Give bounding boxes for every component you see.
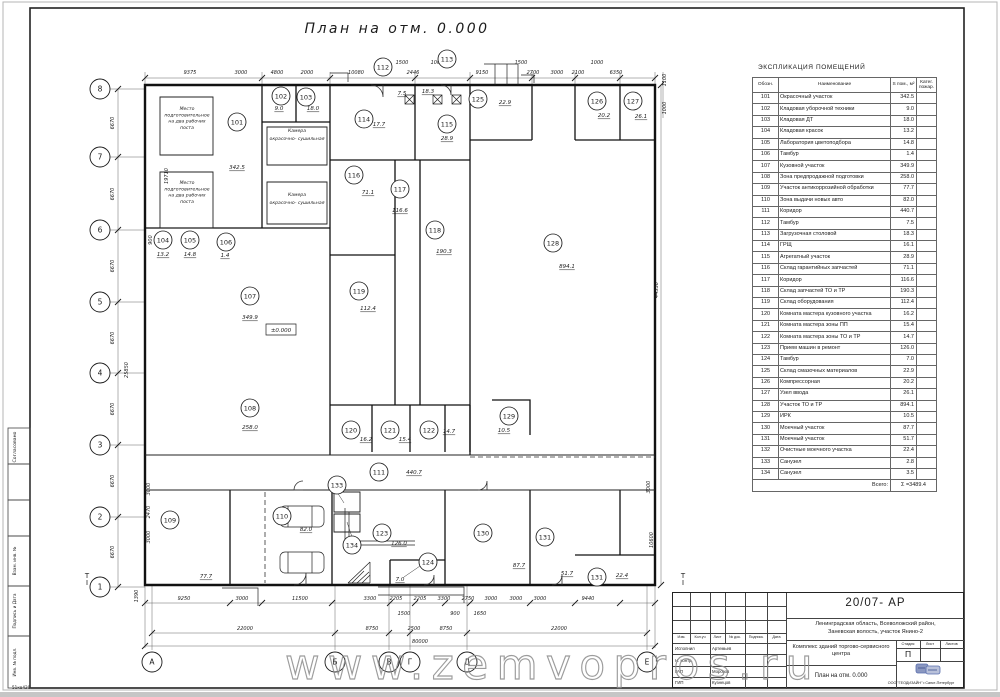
- dim-label: 1500: [515, 60, 528, 66]
- dim-label: 2500: [408, 626, 421, 632]
- room-area: 87.7: [891, 423, 917, 434]
- room-id: 104: [753, 127, 779, 138]
- title-block-project: Комплекс зданий торгово-сервисного центр…: [789, 644, 893, 658]
- dim-label: 2000: [301, 70, 314, 76]
- explication-title: ЭКСПЛИКАЦИЯ ПОМЕЩЕНИЙ: [752, 64, 936, 71]
- side-stamp-label: Подпись и Дата: [12, 593, 17, 628]
- dim-label: 10600: [649, 532, 655, 548]
- role-2: ГАП: [675, 669, 683, 674]
- explication-row: 116Склад гарантийных запчастей71.1: [753, 263, 937, 274]
- room-id: 103: [753, 115, 779, 126]
- room-id: 132: [753, 446, 779, 457]
- room-id: 106: [753, 149, 779, 160]
- room-id: 125: [753, 366, 779, 377]
- dim-label: 6670: [110, 260, 116, 273]
- annotation-text: поста: [180, 126, 194, 131]
- explication-row: 112Тамбур7.5: [753, 218, 937, 229]
- dim-label: 3000: [551, 70, 564, 76]
- room-bubble-114: 11417.7: [355, 110, 386, 128]
- explication-row: 119Склад оборудования112.4: [753, 298, 937, 309]
- explication-row: 122Комната мастера зоны ТО и ТР14.7: [753, 332, 937, 343]
- dim-label: 4800: [271, 70, 284, 76]
- axis-left-6: 6: [98, 226, 103, 235]
- annotation-text: окрасочно- сушильная: [270, 137, 325, 142]
- room-id: 120: [753, 309, 779, 320]
- room-category: [917, 366, 937, 377]
- stage-label: Стадия: [896, 642, 920, 646]
- explication-row: 124Тамбур7.0: [753, 354, 937, 365]
- room-category: [917, 468, 937, 479]
- explication-row: 133Санузел2.8: [753, 457, 937, 468]
- dim-label: 3000: [534, 596, 547, 602]
- room-bubble-118: 118190.3: [426, 221, 452, 255]
- dim-label: 1650: [474, 611, 487, 617]
- survey-marker: Т: [84, 572, 90, 580]
- annotation-text: на два рабочих: [168, 193, 206, 199]
- room-category: [917, 104, 937, 115]
- role-header-data: Дата: [767, 635, 786, 639]
- room-category: [917, 354, 937, 365]
- room-bubble-116: 11671.1: [345, 166, 374, 196]
- room-area: 190.3: [891, 286, 917, 297]
- explication-row: 120Комната мастера кузовного участка16.2: [753, 309, 937, 320]
- room-category: [917, 446, 937, 457]
- room-id: 133: [753, 457, 779, 468]
- dim-label: 2750: [462, 596, 475, 602]
- room-bubble-117: 117116.6: [391, 180, 409, 214]
- room-area: 116.6: [392, 208, 408, 214]
- room-number: 126: [591, 97, 603, 105]
- room-area: 16.1: [891, 241, 917, 252]
- room-number: 134: [346, 541, 358, 549]
- room-area: 894.1: [559, 264, 575, 270]
- room-bubble-120: 12016.2: [342, 421, 373, 443]
- room-category: [917, 411, 937, 422]
- room-category: [917, 161, 937, 172]
- room-id: 123: [753, 343, 779, 354]
- room-name: Кладовая красок: [779, 127, 891, 138]
- room-area: 7.5: [891, 218, 917, 229]
- role-header-izm: Изм.: [673, 635, 690, 639]
- annotation-text: подготовительное: [164, 113, 209, 118]
- room-area: 7.5: [398, 91, 407, 97]
- explication-row: 114ГРЩ16.1: [753, 241, 937, 252]
- dim-label: 6670: [110, 403, 116, 416]
- room-area: 14.8: [891, 138, 917, 149]
- room-area: 1.4: [891, 149, 917, 160]
- room-id: 107: [753, 161, 779, 172]
- room-id: 130: [753, 423, 779, 434]
- explication-row: 128Участок ТО и ТР894.1: [753, 400, 937, 411]
- room-area: 18.3: [891, 229, 917, 240]
- room-number: 101: [231, 118, 243, 126]
- room-area: 22.9: [891, 366, 917, 377]
- room-category: [917, 172, 937, 183]
- room-area: 77.7: [200, 574, 213, 580]
- annotation-text: окрасочно- сушильная: [270, 201, 325, 206]
- dim-label: 44330: [654, 282, 660, 298]
- room-area: 349.9: [891, 161, 917, 172]
- room-category: [917, 286, 937, 297]
- room-area: 13.2: [891, 127, 917, 138]
- room-id: 129: [753, 411, 779, 422]
- room-id: 128: [753, 400, 779, 411]
- dimension-lines: [110, 72, 664, 650]
- room-category: [917, 138, 937, 149]
- room-area: 13.2: [157, 252, 170, 258]
- role-3-name: Кузнецов: [712, 680, 730, 685]
- explication-header-row: Обозн. Наименование S пом., м² Катег. по…: [753, 78, 937, 93]
- room-name: Участок ТО и ТР: [779, 400, 891, 411]
- room-bubble-131: 13151.7: [536, 528, 574, 577]
- room-bubble-121: 12115.4: [381, 421, 412, 443]
- explication-row: 103Кладовая ДТ18.0: [753, 115, 937, 126]
- role-3: ГИП: [675, 680, 684, 685]
- side-stamp-label: Инв. № подл.: [12, 648, 17, 677]
- room-area: 51.7: [561, 571, 574, 577]
- drawing-sheet: Взам. инв. №Подпись и ДатаИнв. № подл.Со…: [0, 0, 1000, 692]
- dim-label: 3000: [485, 596, 498, 602]
- room-area: 17.7: [373, 122, 386, 128]
- axis-bottom-А: А: [149, 658, 155, 667]
- room-bubble-127: 12726.1: [624, 92, 647, 120]
- annotation-text: Камера: [288, 128, 306, 134]
- explication-row: 125Склад смазочных материалов22.9: [753, 366, 937, 377]
- room-name: Окрасочный участок: [779, 93, 891, 104]
- room-bubble-131: 13122.4: [588, 568, 629, 586]
- room-area: 440.7: [891, 206, 917, 217]
- role-1: Н. контр.: [675, 658, 693, 663]
- axis-bottom-В: В: [386, 658, 391, 667]
- dim-label: 900: [148, 235, 154, 245]
- dim-label: 1000: [591, 60, 604, 66]
- dim-label: 6670: [110, 188, 116, 201]
- room-id: 102: [753, 104, 779, 115]
- survey-marker: Т: [680, 572, 686, 580]
- explication-table: ЭКСПЛИКАЦИЯ ПОМЕЩЕНИЙ Обозн. Наименовани…: [752, 64, 936, 492]
- axis-left-5: 5: [98, 298, 103, 307]
- room-number: 110: [276, 512, 288, 520]
- room-id: 110: [753, 195, 779, 206]
- dim-label: 1500: [396, 60, 409, 66]
- room-id: 124: [753, 354, 779, 365]
- dim-label: 3000: [236, 596, 249, 602]
- dimension-labels: 9375300048002000100802446915027003000210…: [110, 60, 668, 645]
- plan-details: ±0.000: [222, 64, 562, 606]
- room-area: 14.7: [443, 429, 456, 435]
- room-number: 108: [244, 404, 256, 412]
- dim-label: 6350: [610, 70, 623, 76]
- room-number: 103: [300, 93, 312, 101]
- explication-row: 132Очистные моечного участка22.4: [753, 446, 937, 457]
- dim-label: 3000: [235, 70, 248, 76]
- explication-row: 131Моечный участок51.7: [753, 434, 937, 445]
- dim-label: 6670: [110, 546, 116, 559]
- room-name: ГРЩ: [779, 241, 891, 252]
- explication-row: 129ИРК10.5: [753, 411, 937, 422]
- room-name: Очистные моечного участка: [779, 446, 891, 457]
- room-area: 349.9: [242, 315, 258, 321]
- sheets-label: Листов: [940, 642, 963, 646]
- room-name: Склад оборудования: [779, 298, 891, 309]
- room-category: [917, 320, 937, 331]
- room-number: 128: [547, 239, 559, 247]
- room-area: 18.0: [307, 106, 320, 112]
- axis-left-7: 7: [98, 153, 103, 162]
- axis-bottom-Г: Г: [408, 658, 413, 667]
- room-area: 22.4: [616, 573, 629, 579]
- company-name: ООО "ГЕОДИЗАЙН" г.Санкт-Петербург: [878, 681, 964, 685]
- room-area: 20.2: [891, 377, 917, 388]
- room-area: 15.4: [399, 437, 412, 443]
- walls: [145, 85, 655, 585]
- annotation-text: подготовительное: [164, 187, 209, 192]
- room-number: 123: [376, 529, 388, 537]
- room-id: 109: [753, 184, 779, 195]
- axis-left-8: 8: [98, 85, 103, 94]
- dim-label: 3000: [646, 481, 652, 494]
- annotation-text: Камера: [288, 192, 306, 198]
- explication-grid: Обозн. Наименование S пом., м² Катег. по…: [752, 77, 937, 492]
- room-number: 120: [345, 426, 357, 434]
- room-area: 26.1: [635, 114, 647, 120]
- room-number: 122: [423, 426, 435, 434]
- explication-row: 106Тамбур1.4: [753, 149, 937, 160]
- explication-row: 113Загрузочная столовой18.3: [753, 229, 937, 240]
- room-number: 124: [422, 558, 434, 566]
- room-bubble-109: 10977.7: [161, 511, 213, 580]
- side-stamp-label: Взам. инв. №: [12, 546, 17, 575]
- dim-label: 2470: [146, 506, 152, 519]
- dim-label: 25850: [124, 362, 130, 378]
- room-id: 115: [753, 252, 779, 263]
- explication-row: 117Коридор116.6: [753, 275, 937, 286]
- room-category: [917, 195, 937, 206]
- room-id: 122: [753, 332, 779, 343]
- role-header-koluch: Кол.уч: [690, 635, 710, 639]
- dim-label: 1500: [398, 611, 411, 617]
- room-area: 14.7: [891, 332, 917, 343]
- explication-row: 134Санузел3.5: [753, 468, 937, 479]
- room-name: Зона выдачи новых авто: [779, 195, 891, 206]
- room-area: 26.1: [891, 389, 917, 400]
- room-name: Лаборатория цветоподбора: [779, 138, 891, 149]
- room-id: 134: [753, 468, 779, 479]
- room-area: 126.0: [391, 541, 407, 547]
- room-area: 18.0: [891, 115, 917, 126]
- room-bubble-134: 134: [343, 536, 361, 554]
- room-name: Участок антикоррозийной обработки: [779, 184, 891, 195]
- explication-row: 105Лаборатория цветоподбора14.8: [753, 138, 937, 149]
- col-area: S пом., м²: [891, 78, 917, 93]
- axis-bottom-Б: Б: [332, 658, 337, 667]
- room-name: Загрузочная столовой: [779, 229, 891, 240]
- room-id: 126: [753, 377, 779, 388]
- dim-label: 3300: [364, 596, 377, 602]
- room-area: 77.7: [891, 184, 917, 195]
- title-block-drawing-title: План на отм. 0.000: [786, 673, 896, 679]
- dim-label: 8750: [366, 626, 379, 632]
- title-block: 20/07- АР Ленинградская область, Всеволо…: [672, 592, 964, 688]
- room-area: 9.0: [275, 106, 284, 112]
- room-id: 127: [753, 389, 779, 400]
- room-name: Зона предпродажной подготовки: [779, 172, 891, 183]
- room-area: 1.4: [221, 253, 230, 259]
- room-id: 121: [753, 320, 779, 331]
- explication-row: 121Комната мастера зоны ПП15.4: [753, 320, 937, 331]
- explication-row: 104Кладовая красок13.2: [753, 127, 937, 138]
- room-area: 28.9: [441, 136, 454, 142]
- axis-grid: 87654321АБВГДЕ: [90, 79, 657, 672]
- room-area: 112.4: [891, 298, 917, 309]
- room-number: 121: [384, 426, 396, 434]
- room-id: 116: [753, 263, 779, 274]
- room-number: 106: [220, 238, 232, 246]
- room-area: 258.0: [242, 425, 258, 431]
- room-category: [917, 457, 937, 468]
- explication-row: 111Коридор440.7: [753, 206, 937, 217]
- room-area: 190.3: [436, 249, 452, 255]
- dim-label: 22000: [237, 626, 253, 632]
- title-block-location-2: Заневская волость, участок Янино-2: [786, 629, 965, 635]
- plan-title: План на отм. 0.000: [304, 21, 489, 37]
- room-area: 440.7: [406, 470, 422, 476]
- role-0-name: Артемьев: [712, 646, 731, 651]
- explication-row: 118Склад запчастей ТО и ТР190.3: [753, 286, 937, 297]
- stage-value: П: [896, 649, 920, 659]
- room-area: 342.5: [229, 165, 245, 171]
- room-area: 20.2: [598, 113, 611, 119]
- corner-note: 51кв420: [12, 685, 31, 690]
- room-bubble-123: 123126.0: [373, 524, 407, 547]
- room-name: Коридор: [779, 275, 891, 286]
- room-area: 71.1: [891, 263, 917, 274]
- room-number: 117: [394, 185, 406, 193]
- room-name: Склад запчастей ТО и ТР: [779, 286, 891, 297]
- dim-label: 2205: [390, 596, 403, 602]
- room-category: [917, 149, 937, 160]
- room-bubble-106: 1061.4: [217, 233, 235, 259]
- annotation-text: Место: [180, 180, 195, 186]
- plan-title: План на отм. 0.000: [304, 21, 489, 37]
- dim-label: 22000: [551, 626, 567, 632]
- room-category: [917, 127, 937, 138]
- room-id: 112: [753, 218, 779, 229]
- dim-label: 9250: [178, 596, 191, 602]
- room-name: Тамбур: [779, 218, 891, 229]
- room-area: 116.6: [891, 275, 917, 286]
- room-bubble-129: 12910.5: [498, 407, 518, 434]
- room-name: Кладовая ДТ: [779, 115, 891, 126]
- approved-label: Согласовано: [12, 431, 18, 462]
- room-area: 18.3: [422, 89, 435, 95]
- room-number: 119: [353, 287, 365, 295]
- room-number: 129: [503, 412, 515, 420]
- room-bubble-133: 133: [328, 476, 346, 494]
- room-number: 133: [331, 481, 343, 489]
- room-bubble-115: 11528.9: [438, 115, 456, 142]
- company-logo: [915, 662, 945, 676]
- room-name: Агрегатный участок: [779, 252, 891, 263]
- room-id: 105: [753, 138, 779, 149]
- room-area: 112.4: [360, 306, 376, 312]
- dim-label: 6670: [110, 475, 116, 488]
- room-name: Склад гарантийных запчастей: [779, 263, 891, 274]
- room-category: [917, 241, 937, 252]
- room-area: 7.0: [396, 577, 405, 583]
- room-number: 127: [627, 97, 639, 105]
- room-bubble-108: 108258.0: [241, 399, 259, 431]
- explication-row: 126Компрессорная20.2: [753, 377, 937, 388]
- room-category: [917, 229, 937, 240]
- room-number: 107: [244, 292, 256, 300]
- room-category: [917, 400, 937, 411]
- room-area: 51.7: [891, 434, 917, 445]
- room-area: 82.0: [891, 195, 917, 206]
- room-name: Тамбур: [779, 354, 891, 365]
- room-bubble-128: 128894.1: [544, 234, 575, 270]
- room-id: 114: [753, 241, 779, 252]
- room-name: Кузовной участок: [779, 161, 891, 172]
- role-header-list: Лист: [710, 635, 725, 639]
- room-bubble-110: 11082.0: [273, 507, 313, 533]
- room-id: 101: [753, 93, 779, 104]
- room-category: [917, 93, 937, 104]
- room-number: 131: [591, 573, 603, 581]
- room-number: 130: [477, 529, 489, 537]
- dim-label: 2205: [414, 596, 427, 602]
- explication-row: 107Кузовной участок349.9: [753, 161, 937, 172]
- room-number: 104: [157, 236, 169, 244]
- room-area: 342.5: [891, 93, 917, 104]
- room-name: Комната мастера кузовного участка: [779, 309, 891, 320]
- dim-label: 3000: [510, 596, 523, 602]
- total-label: Всего:: [753, 480, 891, 491]
- room-area: 10.5: [891, 411, 917, 422]
- room-name: Санузел: [779, 457, 891, 468]
- role-0: Исполнил: [675, 646, 695, 651]
- role-header-ndoc: № док.: [725, 635, 745, 639]
- title-block-code: 20/07- АР: [786, 597, 965, 609]
- room-category: [917, 206, 937, 217]
- room-bubble-122: 12214.7: [420, 421, 456, 439]
- role-2-name: Морозов: [712, 669, 729, 674]
- room-id: 119: [753, 298, 779, 309]
- room-area: 2.8: [891, 457, 917, 468]
- room-number: 131: [539, 533, 551, 541]
- room-area: 28.9: [891, 252, 917, 263]
- room-area: 7.0: [891, 354, 917, 365]
- room-number: 114: [358, 115, 370, 123]
- dim-label: 11500: [292, 596, 308, 602]
- axis-bottom-Е: Е: [645, 658, 650, 667]
- room-labels: 101342.51029.010318.010413.210514.81061.…: [154, 50, 647, 586]
- room-area: 15.4: [891, 320, 917, 331]
- room-number: 118: [429, 226, 441, 234]
- dim-label: 3000: [146, 483, 152, 496]
- room-name: Коридор: [779, 206, 891, 217]
- axis-left-4: 4: [98, 369, 103, 378]
- dim-label: 9150: [476, 70, 489, 76]
- dim-label: 80000: [412, 639, 428, 645]
- dim-label: 10080: [348, 70, 364, 76]
- room-area: 87.7: [513, 563, 526, 569]
- room-name: Компрессорная: [779, 377, 891, 388]
- room-category: [917, 218, 937, 229]
- room-bubble-104: 10413.2: [154, 231, 172, 258]
- room-bubble-125: 12522.9: [469, 90, 512, 108]
- room-number: 105: [184, 236, 196, 244]
